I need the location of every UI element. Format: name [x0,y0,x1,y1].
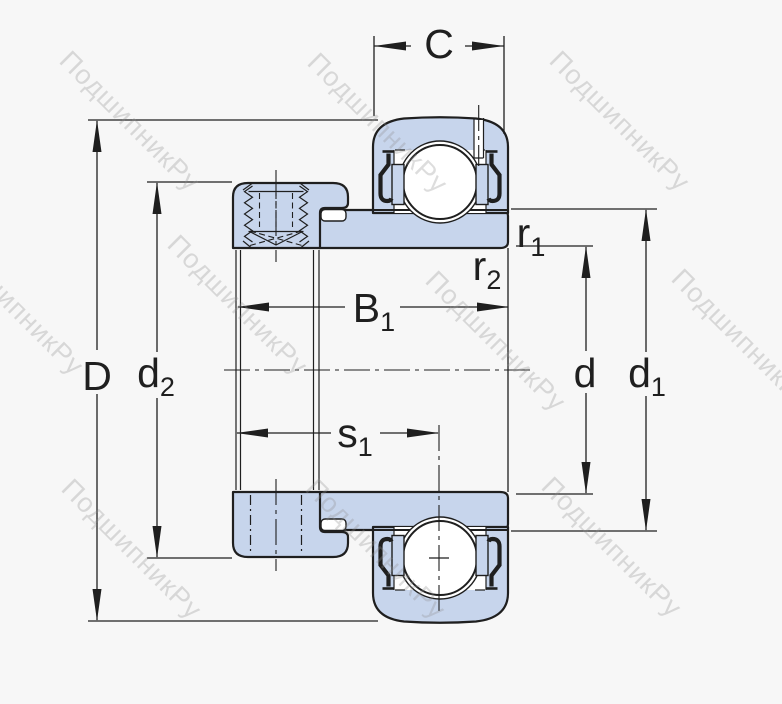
watermark-text: ПодшипникРу [54,45,206,197]
dim-label-d2: d2 [137,350,175,402]
cage-right [476,165,488,205]
cage-left [392,165,404,205]
collar-ring-gap [321,210,346,222]
watermark-text: ПодшипникРу [0,229,90,381]
dim-label-B1: B1 [353,285,395,337]
dim-d1: d1 [628,209,666,531]
dim-label-d1: d1 [628,350,666,402]
lubrication-hole [474,105,484,166]
dim-label-C: C [424,21,454,67]
dim-s1: s1 [236,410,439,462]
bearing-drawing-page: C D d2 B1 s1 d d1 r1 r2 ПодшипникРу П [0,0,782,704]
dim-label-d: d [574,350,597,396]
watermark-text: ПодшипникРу [666,263,782,415]
dim-C: C [374,21,504,67]
dim-D: D [82,120,112,621]
dim-d: d [574,246,597,494]
watermark-text: ПодшипникРу [162,229,314,381]
dim-label-s1: s1 [337,410,373,462]
watermark-text: ПодшипникРу [544,45,696,197]
watermark-text: ПодшипникРу [56,473,208,625]
dim-label-r1: r1 [517,210,546,262]
watermark-text: ПодшипникРу [536,471,688,623]
bearing-cross-section-svg: C D d2 B1 s1 d d1 r1 r2 ПодшипникРу П [0,0,782,704]
dim-label-r2: r2 [473,243,502,295]
dim-d2: d2 [137,182,175,558]
